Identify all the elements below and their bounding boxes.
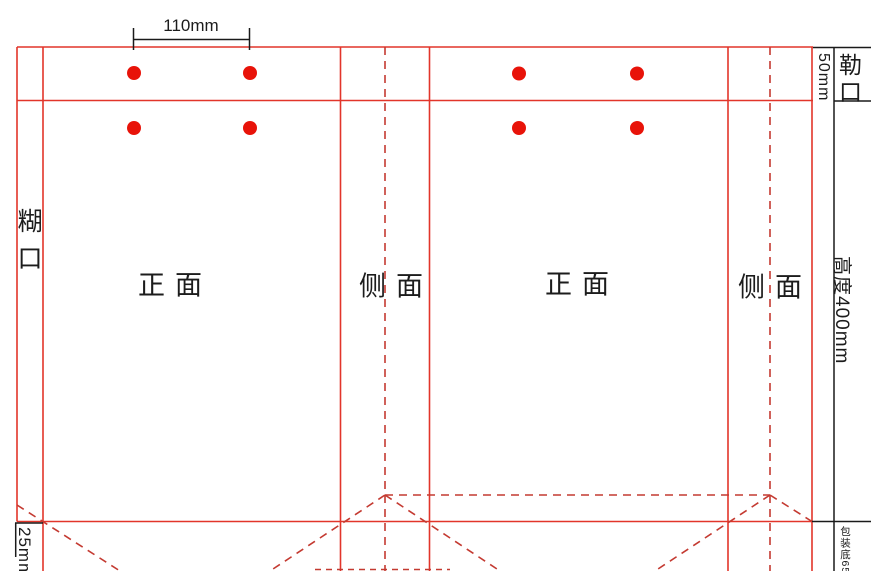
hole-spacing-dimension-label: 110mm — [163, 16, 218, 36]
side1-right-diagonal-fold — [385, 495, 500, 571]
bottom-gusset-note-label: 包装底65 — [838, 526, 853, 571]
glue-flap-label: 糊口 — [15, 204, 45, 278]
punch-hole — [127, 121, 141, 135]
side1-left-diagonal-fold — [270, 495, 385, 571]
punch-hole — [630, 121, 644, 135]
bottom-fold-dimension-label: 25mm — [14, 527, 34, 571]
punch-hole — [512, 67, 526, 81]
punch-hole — [127, 66, 141, 80]
front-panel-1-label: 正面 — [138, 264, 212, 303]
top-cuff-label: 勒口 — [837, 52, 864, 106]
punch-hole — [630, 67, 644, 81]
side2-right-diagonal-fold — [770, 495, 812, 522]
side2-left-diagonal-fold — [655, 495, 770, 571]
side-panel-2-label: 侧面 — [738, 266, 812, 305]
cuff-width-dimension-label: 50mm — [814, 53, 832, 101]
punch-hole — [243, 121, 257, 135]
bag-height-dimension-label: 高度400mm — [830, 256, 857, 364]
punch-hole — [243, 66, 257, 80]
front-panel-2-label: 正面 — [545, 263, 619, 302]
bag-dieline-drawing: 110mm 正面 侧面 正面 侧面 糊口 勒口 50mm 高度400mm 25m… — [0, 0, 871, 571]
punch-hole — [512, 121, 526, 135]
side-panel-1-label: 侧面 — [359, 265, 433, 304]
